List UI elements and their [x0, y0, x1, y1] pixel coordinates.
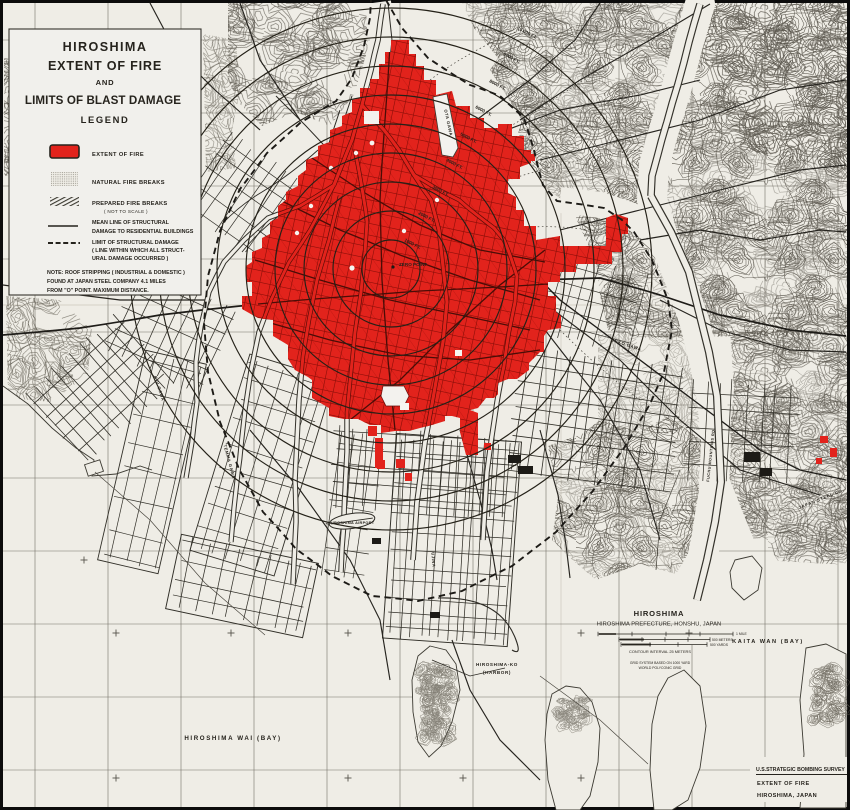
svg-text:AND: AND [96, 78, 115, 87]
svg-text:MEAN LINE OF STRUCTURAL: MEAN LINE OF STRUCTURAL [92, 220, 170, 226]
svg-text:ZERO POINT: ZERO POINT [399, 262, 427, 267]
svg-text:( NOT TO SCALE ): ( NOT TO SCALE ) [104, 209, 148, 214]
svg-text:LEGEND: LEGEND [81, 114, 130, 125]
svg-text:URAL DAMAGE OCCURRED ): URAL DAMAGE OCCURRED ) [92, 256, 168, 262]
svg-text:HIROSHIMA AIRPORT: HIROSHIMA AIRPORT [330, 521, 375, 525]
svg-text:NATURAL FIRE BREAKS: NATURAL FIRE BREAKS [92, 180, 165, 186]
svg-text:500 METERS: 500 METERS [712, 638, 733, 642]
svg-text:GRID SYSTEM BASED ON 1000 YARD: GRID SYSTEM BASED ON 1000 YARD [630, 661, 691, 665]
svg-text:LIMITS OF BLAST DAMAGE: LIMITS OF BLAST DAMAGE [25, 94, 181, 107]
svg-text:1 MILE: 1 MILE [736, 632, 747, 636]
svg-text:EXTENT OF FIRE: EXTENT OF FIRE [48, 59, 162, 73]
svg-text:KAITA WAN (BAY): KAITA WAN (BAY) [732, 639, 804, 645]
svg-text:(HARBOR): (HARBOR) [483, 670, 511, 675]
svg-text:HIROSHIMA WAI (BAY): HIROSHIMA WAI (BAY) [184, 735, 281, 742]
svg-text:U.S.STRATEGIC BOMBING SURVEY: U.S.STRATEGIC BOMBING SURVEY [756, 767, 845, 773]
svg-text:EXTENT OF FIRE: EXTENT OF FIRE [92, 152, 144, 158]
svg-text:EXTENT OF FIRE: EXTENT OF FIRE [757, 781, 810, 787]
svg-text:HIROSHIMA: HIROSHIMA [63, 40, 148, 54]
svg-text:FOUND AT JAPAN STEEL COMPA: FOUND AT JAPAN STEEL COMPANY 4.1 MILES [47, 279, 166, 285]
svg-text:HIROSHIMA, JAPAN: HIROSHIMA, JAPAN [757, 793, 817, 799]
svg-text:LIMIT OF STRUCTURAL DAMAGE: LIMIT OF STRUCTURAL DAMAGE [92, 240, 179, 246]
svg-text:HIROSHIMA-KO: HIROSHIMA-KO [476, 662, 518, 667]
svg-text:500 YARDS: 500 YARDS [710, 643, 729, 647]
svg-text:WORLD POLYCONIC GRID: WORLD POLYCONIC GRID [639, 666, 682, 670]
svg-text:NOTE: ROOF STRIPPING ( INDUS: NOTE: ROOF STRIPPING ( INDUSTRIAL & DOME… [47, 270, 185, 276]
svg-text:CONTOUR INTERVAL 25 METERS: CONTOUR INTERVAL 25 METERS [629, 649, 691, 654]
svg-text:( LINE WITHIN WHICH ALL ST: ( LINE WITHIN WHICH ALL STRUCT- [92, 248, 185, 254]
svg-text:FROM "O" POINT. MAXIMUM DI: FROM "O" POINT. MAXIMUM DISTANCE. [47, 288, 149, 294]
svg-text:HIROSHIMA: HIROSHIMA [634, 609, 685, 618]
svg-text:DAMAGE TO RESIDENTIAL BUILDIN: DAMAGE TO RESIDENTIAL BUILDINGS [92, 229, 194, 235]
svg-text:PREPARED FIRE BREAKS: PREPARED FIRE BREAKS [92, 201, 167, 207]
svg-text:HIROSHIMA PREFECTURE, HONSHU,: HIROSHIMA PREFECTURE, HONSHU, JAPAN [597, 622, 721, 628]
